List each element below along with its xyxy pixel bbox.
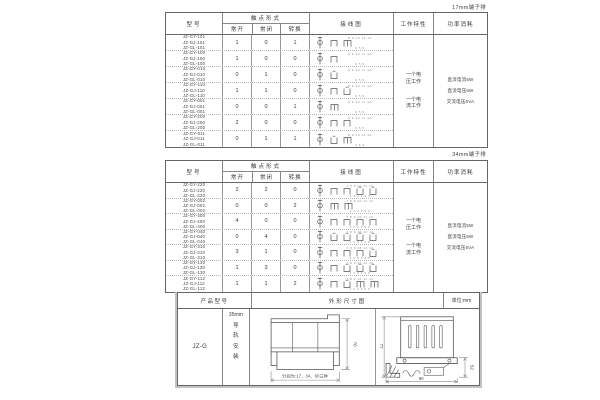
wiring-diagram: 7 8 9 10 11 121 2 3 4 5 6 — [312, 276, 392, 291]
col-header-normally-closed: 常闭 — [252, 24, 281, 34]
table2-caption: 34mm端子排 — [452, 150, 486, 158]
nc-count: 1 — [251, 83, 280, 98]
wiring-diagram-cell: 7 8 9 10 11 121 2 3 4 5 6 — [309, 230, 393, 245]
rows: JZ-GY-220JZ-GJ-220JZ-GL-2202207 8 9 10 1… — [166, 183, 393, 292]
wiring-diagram-cell: 8 9 10 11 124 5 6 — [309, 99, 393, 114]
product-model-cell: JZ-G — [178, 309, 222, 385]
col-header-product-model: 产品型号 — [178, 293, 251, 308]
power-consumption-cell: 直流电流5W 直流电压5W 交流电压5VA — [433, 183, 487, 292]
svg-text:1 2 3 4 5 6: 1 2 3 4 5 6 — [349, 209, 370, 213]
svg-text:8 9 10 11 12: 8 9 10 11 12 — [348, 68, 372, 72]
wiring-diagram: 7 8 9 10 11 121 2 3 4 5 6 — [312, 183, 392, 198]
power-text: 交流电压5VA — [447, 99, 475, 105]
nc-count: 0 — [251, 35, 280, 50]
working-text: 一个电流工作 — [405, 243, 422, 257]
nc-count: 0 — [251, 51, 280, 66]
svg-text:4 5 6: 4 5 6 — [355, 62, 365, 66]
no-count: 2 — [222, 115, 251, 130]
wiring-diagram-cell: 7 8 9 10 11 121 2 3 4 5 6 — [309, 199, 393, 214]
front-height-dim: 70 — [352, 342, 357, 347]
table-header: 型号 触点形式 常开 常闭 转换 接线图 工作特性 功率消耗 — [166, 161, 487, 183]
nc-count: 1 — [251, 67, 280, 82]
no-count: 1 — [222, 261, 251, 276]
working-text: 一个电压工作 — [405, 218, 422, 232]
spec-table-17mm: 型号 触点形式 常开 常闭 转换 接线图 工作特性 功率消耗 JZ-GY-101… — [165, 12, 488, 148]
col-header-contact-form: 触点形式 — [223, 13, 309, 24]
co-count: 1 — [280, 35, 309, 50]
nc-count: 0 — [251, 199, 280, 214]
model-list: JZ-GY-220JZ-GJ-220JZ-GL-220 — [166, 183, 222, 198]
svg-text:7 8 9 10 11 12: 7 8 9 10 11 12 — [346, 246, 373, 250]
model-list: JZ-GY-100JZ-GJ-100JZ-GL-100 — [166, 51, 222, 66]
model-list: JZ-GY-400JZ-GJ-400JZ-GL-400 — [166, 214, 222, 229]
co-count: 0 — [280, 261, 309, 276]
no-count: 0 — [222, 199, 251, 214]
wiring-diagram-cell: 7 8 9 10 11 121 2 3 4 5 6 — [309, 214, 393, 229]
model-list: JZ-GY-110JZ-GJ-110JZ-GL-110 — [166, 83, 222, 98]
wiring-diagram: 7 8 9 10 11 121 2 3 4 5 6 — [312, 245, 392, 260]
svg-text:7 8 9 10 11 12: 7 8 9 10 11 12 — [346, 199, 373, 203]
power-text: 直流电压5W — [448, 88, 474, 94]
svg-text:4 5 6: 4 5 6 — [355, 110, 365, 114]
wiring-diagram-cell: 7 8 9 10 11 121 2 3 4 5 6 — [309, 261, 393, 276]
col-header-model: 型号 — [166, 161, 222, 182]
front-view-svg: 70 分别为:17、34、60三种 — [250, 309, 375, 385]
power-text: 直流电流5W — [448, 223, 474, 229]
mounting-label: 导轨安装 — [232, 321, 240, 363]
side-width-dim: 90 — [419, 376, 424, 381]
col-header-outline-drawing: 外形尺寸图 — [251, 293, 443, 308]
model-list: JZ-GY-310JZ-GJ-310JZ-GL-310 — [166, 245, 222, 260]
working-characteristic-cell: 一个电压工作 一个电流工作 — [393, 35, 433, 147]
col-header-working-characteristic: 工作特性 — [393, 13, 433, 34]
width-note: 分别为:17、34、60三种 — [282, 373, 328, 379]
svg-text:4 5 6: 4 5 6 — [355, 78, 365, 82]
svg-text:8 9 10 11 12: 8 9 10 11 12 — [348, 100, 372, 104]
co-count: 0 — [280, 214, 309, 229]
model-list: JZ-GY-001JZ-GJ-001JZ-GL-001 — [166, 99, 222, 114]
model-list: JZ-GY-010JZ-GJ-010JZ-GL-010 — [166, 67, 222, 82]
nc-count: 1 — [251, 276, 280, 292]
svg-text:4 5 6: 4 5 6 — [355, 126, 365, 130]
wiring-diagram-cell: 8 9 10 11 124 5 6 — [309, 35, 393, 50]
col-header-power-consumption: 功率消耗 — [433, 13, 487, 34]
nc-count: 0 — [251, 115, 280, 130]
co-count: 2 — [280, 199, 309, 214]
co-count: 1 — [280, 99, 309, 114]
col-header-normally-open: 常开 — [223, 172, 252, 182]
model-list: JZ-GY-130JZ-GJ-130JZ-GL-130 — [166, 261, 222, 276]
side-clip-dim: 52 — [469, 365, 474, 370]
no-count: 2 — [222, 183, 251, 198]
table-row: JZ-GY-101JZ-GJ-101JZ-GL-1011018 9 10 11 … — [166, 35, 393, 51]
co-count: 0 — [280, 115, 309, 130]
working-characteristic-cell: 一个电压工作 一个电流工作 — [393, 183, 433, 292]
svg-text:8 9 10 11 12: 8 9 10 11 12 — [348, 84, 372, 88]
model-list: JZ-GY-040JZ-GJ-040JZ-GL-040 — [166, 230, 222, 245]
no-count: 3 — [222, 245, 251, 260]
svg-text:8 9 10 11 12: 8 9 10 11 12 — [348, 116, 372, 120]
no-count: 0 — [222, 131, 251, 147]
table-row: JZ-GY-220JZ-GJ-220JZ-GL-2202207 8 9 10 1… — [166, 183, 393, 199]
no-count: 0 — [222, 67, 251, 82]
spec-table-34mm: 型号 触点形式 常开 常闭 转换 接线图 工作特性 功率消耗 JZ-GY-220… — [165, 160, 488, 293]
wiring-diagram-cell: 7 8 9 10 11 121 2 3 4 5 6 — [309, 183, 393, 198]
table-row: JZ-GY-130JZ-GJ-130JZ-GL-1301307 8 9 10 1… — [166, 261, 393, 277]
wiring-diagram-cell: 7 8 9 10 11 121 2 3 4 5 6 — [309, 276, 393, 292]
svg-text:1 2 3 4 5 6: 1 2 3 4 5 6 — [349, 287, 370, 291]
svg-text:7 8 9 10 11 12: 7 8 9 10 11 12 — [346, 277, 373, 281]
wiring-diagram: 7 8 9 10 11 121 2 3 4 5 6 — [312, 260, 392, 275]
svg-text:8 9 10 11 12: 8 9 10 11 12 — [348, 36, 372, 40]
co-count: 0 — [280, 51, 309, 66]
nc-count: 4 — [251, 230, 280, 245]
table-row: JZ-GY-002JZ-GJ-002JZ-GL-0020027 8 9 10 1… — [166, 199, 393, 215]
nc-count: 0 — [251, 214, 280, 229]
table-row: JZ-GY-310JZ-GJ-310JZ-GL-3103107 8 9 10 1… — [166, 245, 393, 261]
model-list: JZ-GY-200JZ-GJ-200JZ-GL-200 — [166, 115, 222, 130]
working-text: 一个电流工作 — [405, 97, 422, 111]
co-count: 2 — [280, 276, 309, 292]
wiring-diagram: 8 9 10 11 124 5 6 — [312, 99, 392, 114]
no-count: 4 — [222, 214, 251, 229]
wiring-diagram: 8 9 10 11 124 5 6 — [312, 51, 392, 66]
unit-label: 单位:mm — [443, 293, 479, 308]
svg-text:1 2 3 4 5 6: 1 2 3 4 5 6 — [349, 256, 370, 260]
wiring-diagram-cell: 7 8 9 10 11 121 2 3 4 5 6 — [309, 245, 393, 260]
wiring-diagram: 7 8 9 10 11 121 2 3 4 5 6 — [312, 198, 392, 213]
wiring-diagram: 8 9 10 11 124 5 6 — [312, 132, 392, 147]
svg-text:4 5 6: 4 5 6 — [355, 46, 365, 50]
wiring-diagram: 7 8 9 10 11 121 2 3 4 5 6 — [312, 229, 392, 244]
co-count: 0 — [280, 67, 309, 82]
side-view-drawing: 77 52 90 — [375, 309, 479, 385]
mounting-cell: 35mm 导轨安装 — [222, 309, 249, 385]
table-header: 型号 触点形式 常开 常闭 转换 接线图 工作特性 功率消耗 — [166, 13, 487, 35]
rail-size-label: 35mm — [229, 312, 243, 318]
table-row: JZ-GY-110JZ-GJ-110JZ-GL-1101108 9 10 11 … — [166, 83, 393, 99]
outline-table-header: 产品型号 外形尺寸图 单位:mm — [178, 293, 479, 309]
svg-text:8 9 10 11 12: 8 9 10 11 12 — [348, 52, 372, 56]
front-view-drawing: 70 分别为:17、34、60三种 — [250, 309, 375, 385]
power-text: 交流电压5VA — [447, 245, 475, 251]
no-count: 1 — [222, 51, 251, 66]
no-count: 1 — [222, 35, 251, 50]
col-header-working-characteristic: 工作特性 — [393, 161, 433, 182]
nc-count: 1 — [251, 131, 280, 147]
wiring-diagram: 8 9 10 11 124 5 6 — [312, 35, 392, 50]
table-row: JZ-GY-040JZ-GJ-040JZ-GL-0400407 8 9 10 1… — [166, 230, 393, 246]
svg-text:8 9 10 11 12: 8 9 10 11 12 — [348, 132, 372, 136]
nc-count: 1 — [251, 245, 280, 260]
wiring-diagram: 7 8 9 10 11 121 2 3 4 5 6 — [312, 214, 392, 229]
co-count: 0 — [280, 83, 309, 98]
no-count: 0 — [222, 99, 251, 114]
col-header-contact-form: 触点形式 — [223, 161, 309, 172]
nc-count: 0 — [251, 99, 280, 114]
side-height-dim: 77 — [379, 344, 384, 349]
co-count: 1 — [280, 131, 309, 147]
nc-count: 2 — [251, 183, 280, 198]
table-row: JZ-GY-100JZ-GJ-100JZ-GL-1001008 9 10 11 … — [166, 51, 393, 67]
wiring-diagram-cell: 8 9 10 11 124 5 6 — [309, 131, 393, 147]
power-text: 直流电流5W — [448, 77, 474, 83]
wiring-diagram-cell: 8 9 10 11 124 5 6 — [309, 67, 393, 82]
model-list: JZ-GY-112JZ-GJ-112JZ-GL-112 — [166, 276, 222, 292]
svg-text:4 5 6: 4 5 6 — [355, 94, 365, 98]
co-count: 0 — [280, 183, 309, 198]
model-list: JZ-GY-011JZ-GJ-011JZ-GL-011 — [166, 131, 222, 147]
co-count: 0 — [280, 245, 309, 260]
col-header-normally-open: 常开 — [223, 24, 252, 34]
model-list: JZ-GY-002JZ-GJ-002JZ-GL-002 — [166, 199, 222, 214]
no-count: 1 — [222, 276, 251, 292]
table1-caption: 17mm端子排 — [452, 3, 486, 11]
table-row: JZ-GY-400JZ-GJ-400JZ-GL-4004007 8 9 10 1… — [166, 214, 393, 230]
side-view-svg: 77 52 90 — [376, 309, 479, 385]
wiring-diagram-cell: 8 9 10 11 124 5 6 — [309, 83, 393, 98]
col-header-wiring-diagram: 接线图 — [309, 161, 393, 182]
table-row: JZ-GY-112JZ-GJ-112JZ-GL-1121127 8 9 10 1… — [166, 276, 393, 292]
col-header-model: 型号 — [166, 13, 222, 34]
table-row: JZ-GY-011JZ-GJ-011JZ-GL-0110118 9 10 11 … — [166, 131, 393, 147]
svg-text:4 5 6: 4 5 6 — [355, 143, 365, 147]
svg-text:7 8 9 10 11 12: 7 8 9 10 11 12 — [346, 215, 373, 219]
nc-count: 3 — [251, 261, 280, 276]
rows: JZ-GY-101JZ-GJ-101JZ-GL-1011018 9 10 11 … — [166, 35, 393, 147]
col-header-normally-closed: 常闭 — [252, 172, 281, 182]
wiring-diagram-cell: 8 9 10 11 124 5 6 — [309, 115, 393, 130]
table-row: JZ-GY-200JZ-GJ-200JZ-GL-2002008 9 10 11 … — [166, 115, 393, 131]
col-group-contact-form: 触点形式 常开 常闭 转换 — [222, 13, 309, 34]
no-count: 1 — [222, 83, 251, 98]
co-count: 0 — [280, 230, 309, 245]
power-consumption-cell: 直流电流5W 直流电压5W 交流电压5VA — [433, 35, 487, 147]
datasheet-page: 17mm端子排 型号 触点形式 常开 常闭 转换 接线图 工作特性 功率消耗 J… — [165, 0, 488, 400]
table-row: JZ-GY-001JZ-GJ-001JZ-GL-0010018 9 10 11 … — [166, 99, 393, 115]
wiring-diagram: 8 9 10 11 124 5 6 — [312, 83, 392, 98]
wiring-diagram: 8 9 10 11 124 5 6 — [312, 67, 392, 82]
outline-drawings: 70 分别为:17、34、60三种 — [249, 309, 479, 385]
model-list: JZ-GY-101JZ-GJ-101JZ-GL-101 — [166, 35, 222, 50]
col-header-changeover: 转换 — [280, 172, 309, 182]
table-row: JZ-GY-010JZ-GJ-010JZ-GL-0100108 9 10 11 … — [166, 67, 393, 83]
power-text: 直流电压5W — [448, 234, 474, 240]
wiring-diagram-cell: 8 9 10 11 124 5 6 — [309, 51, 393, 66]
col-header-wiring-diagram: 接线图 — [309, 13, 393, 34]
col-header-power-consumption: 功率消耗 — [433, 161, 487, 182]
outline-dimension-table: 产品型号 外形尺寸图 单位:mm JZ-G 35mm 导轨安装 — [177, 292, 480, 386]
no-count: 0 — [222, 230, 251, 245]
svg-text:1 2 3 4 5 6: 1 2 3 4 5 6 — [349, 225, 370, 229]
col-header-changeover: 转换 — [280, 24, 309, 34]
col-group-contact-form: 触点形式 常开 常闭 转换 — [222, 161, 309, 182]
working-text: 一个电压工作 — [405, 72, 422, 86]
wiring-diagram: 8 9 10 11 124 5 6 — [312, 115, 392, 130]
